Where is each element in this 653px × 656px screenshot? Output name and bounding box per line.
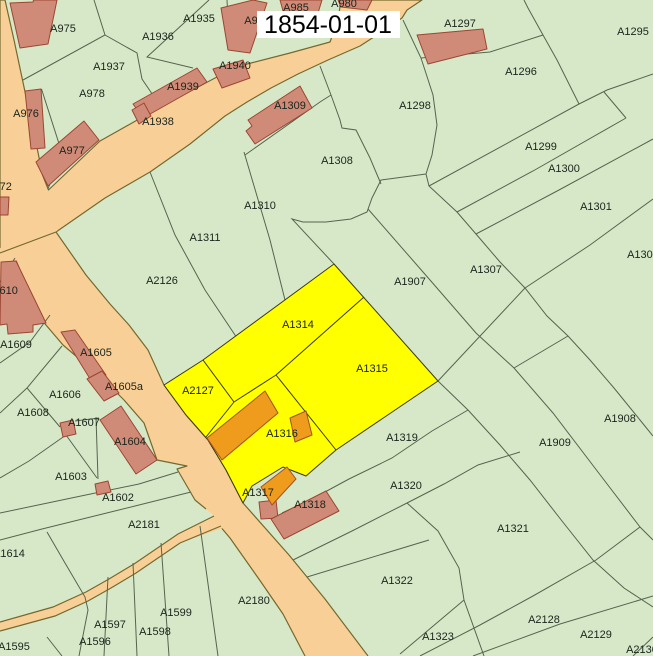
svg-text:A2180: A2180 (238, 595, 270, 607)
svg-text:A1318: A1318 (294, 499, 326, 511)
svg-text:A1597: A1597 (94, 619, 126, 631)
svg-text:A972: A972 (0, 181, 12, 193)
svg-text:A1323: A1323 (422, 631, 454, 643)
svg-text:A2130: A2130 (626, 644, 653, 656)
svg-text:A1908: A1908 (604, 413, 636, 425)
svg-text:A1316: A1316 (266, 428, 298, 440)
svg-text:A975: A975 (50, 23, 76, 35)
svg-text:A1909: A1909 (539, 437, 571, 449)
svg-text:A1938: A1938 (142, 116, 174, 128)
svg-text:A1602: A1602 (102, 492, 134, 504)
svg-text:A1322: A1322 (381, 575, 413, 587)
svg-text:A1315: A1315 (356, 363, 388, 375)
svg-text:A1936: A1936 (142, 31, 174, 43)
svg-text:A1308: A1308 (321, 155, 353, 167)
svg-text:A1603: A1603 (55, 471, 87, 483)
svg-text:A1935: A1935 (183, 13, 215, 25)
svg-text:A1604: A1604 (114, 436, 146, 448)
svg-text:A1296: A1296 (505, 66, 537, 78)
svg-text:A1610: A1610 (0, 285, 18, 297)
svg-text:A1598: A1598 (139, 626, 171, 638)
svg-text:A1599: A1599 (160, 607, 192, 619)
svg-text:A1606: A1606 (49, 389, 81, 401)
svg-text:A1297: A1297 (444, 18, 476, 30)
svg-text:A1310: A1310 (244, 200, 276, 212)
svg-text:A1596: A1596 (79, 636, 111, 648)
svg-text:A1300: A1300 (548, 163, 580, 175)
svg-text:A1295: A1295 (617, 26, 649, 38)
svg-text:A1320: A1320 (390, 480, 422, 492)
svg-text:A1317: A1317 (242, 487, 274, 499)
svg-text:A1319: A1319 (386, 432, 418, 444)
svg-text:A1307: A1307 (470, 264, 502, 276)
svg-text:A977: A977 (59, 145, 85, 157)
svg-text:A976: A976 (13, 108, 39, 120)
svg-text:A1605: A1605 (80, 347, 112, 359)
svg-text:A1299: A1299 (525, 141, 557, 153)
svg-text:A1605a: A1605a (105, 381, 144, 393)
svg-text:A1301: A1301 (580, 201, 612, 213)
svg-text:A2126: A2126 (146, 275, 178, 287)
svg-text:A980: A980 (331, 0, 357, 10)
svg-text:A1907: A1907 (394, 276, 426, 288)
svg-text:A2128: A2128 (528, 614, 560, 626)
svg-text:A9: A9 (244, 15, 257, 27)
svg-text:A1595: A1595 (0, 641, 30, 653)
svg-text:A1298: A1298 (399, 100, 431, 112)
svg-text:A2181: A2181 (128, 519, 160, 531)
svg-text:A1609: A1609 (0, 339, 32, 351)
svg-text:A1614: A1614 (0, 548, 25, 560)
svg-text:A2127: A2127 (182, 385, 214, 397)
svg-text:1854-01-01: 1854-01-01 (264, 11, 392, 39)
svg-text:A2129: A2129 (580, 629, 612, 641)
svg-text:A978: A978 (79, 88, 105, 100)
svg-text:A1321: A1321 (497, 523, 529, 535)
svg-text:A1302: A1302 (627, 249, 653, 261)
svg-text:A1940: A1940 (219, 60, 251, 72)
svg-text:A1608: A1608 (17, 407, 49, 419)
svg-text:A1309: A1309 (274, 100, 306, 112)
svg-text:A1314: A1314 (282, 319, 314, 331)
svg-text:A1937: A1937 (93, 61, 125, 73)
svg-text:A1311: A1311 (190, 232, 221, 244)
svg-text:A1939: A1939 (167, 81, 199, 93)
svg-text:A1607: A1607 (68, 417, 100, 429)
